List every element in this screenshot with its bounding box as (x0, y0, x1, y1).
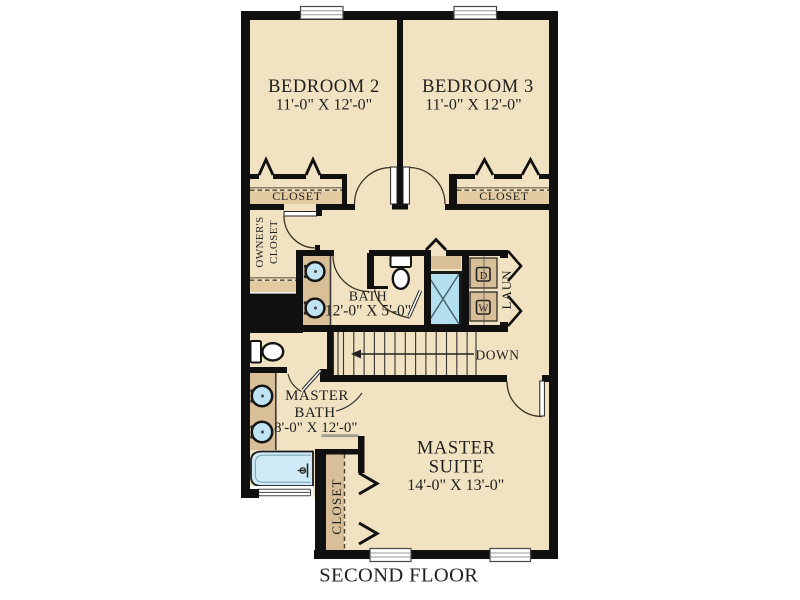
svg-text:CLOSET: CLOSET (272, 189, 322, 203)
svg-text:DOWN: DOWN (476, 348, 520, 363)
svg-text:BEDROOM 3: BEDROOM 3 (422, 77, 534, 97)
svg-text:MASTER: MASTER (285, 388, 349, 404)
svg-text:14'-0" X 13'-0": 14'-0" X 13'-0" (407, 477, 504, 494)
svg-text:11'-0" X 12'-0": 11'-0" X 12'-0" (276, 97, 372, 114)
svg-text:BATH: BATH (294, 405, 335, 421)
svg-text:OWNER'S: OWNER'S (254, 216, 266, 267)
svg-text:MASTER: MASTER (417, 439, 496, 459)
svg-text:SECOND FLOOR: SECOND FLOOR (319, 565, 478, 587)
svg-text:11'-0" X 12'-0": 11'-0" X 12'-0" (425, 97, 521, 114)
svg-text:W: W (479, 304, 489, 315)
svg-text:12'-0" X 5'-0": 12'-0" X 5'-0" (325, 303, 411, 320)
svg-text:CLOSET: CLOSET (268, 220, 280, 264)
svg-text:CLOSET: CLOSET (479, 189, 529, 203)
svg-text:SUITE: SUITE (429, 458, 484, 478)
svg-text:8'-0" X 12'-0": 8'-0" X 12'-0" (274, 420, 357, 436)
svg-text:CLOSET: CLOSET (329, 478, 344, 534)
svg-text:BEDROOM 2: BEDROOM 2 (268, 77, 380, 97)
